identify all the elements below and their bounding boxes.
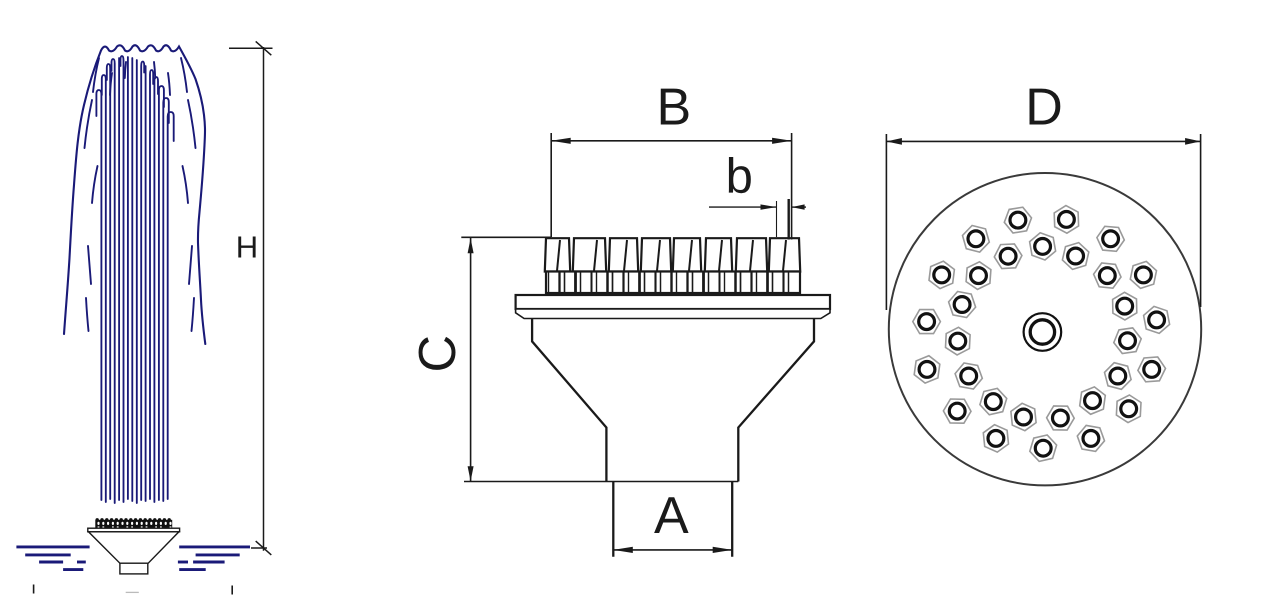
svg-text:B: B (657, 78, 692, 136)
svg-text:D: D (1025, 78, 1063, 136)
svg-text:b: b (726, 150, 753, 204)
svg-text:A: A (654, 487, 689, 545)
svg-text:H: H (236, 230, 258, 265)
svg-text:C: C (409, 335, 467, 373)
